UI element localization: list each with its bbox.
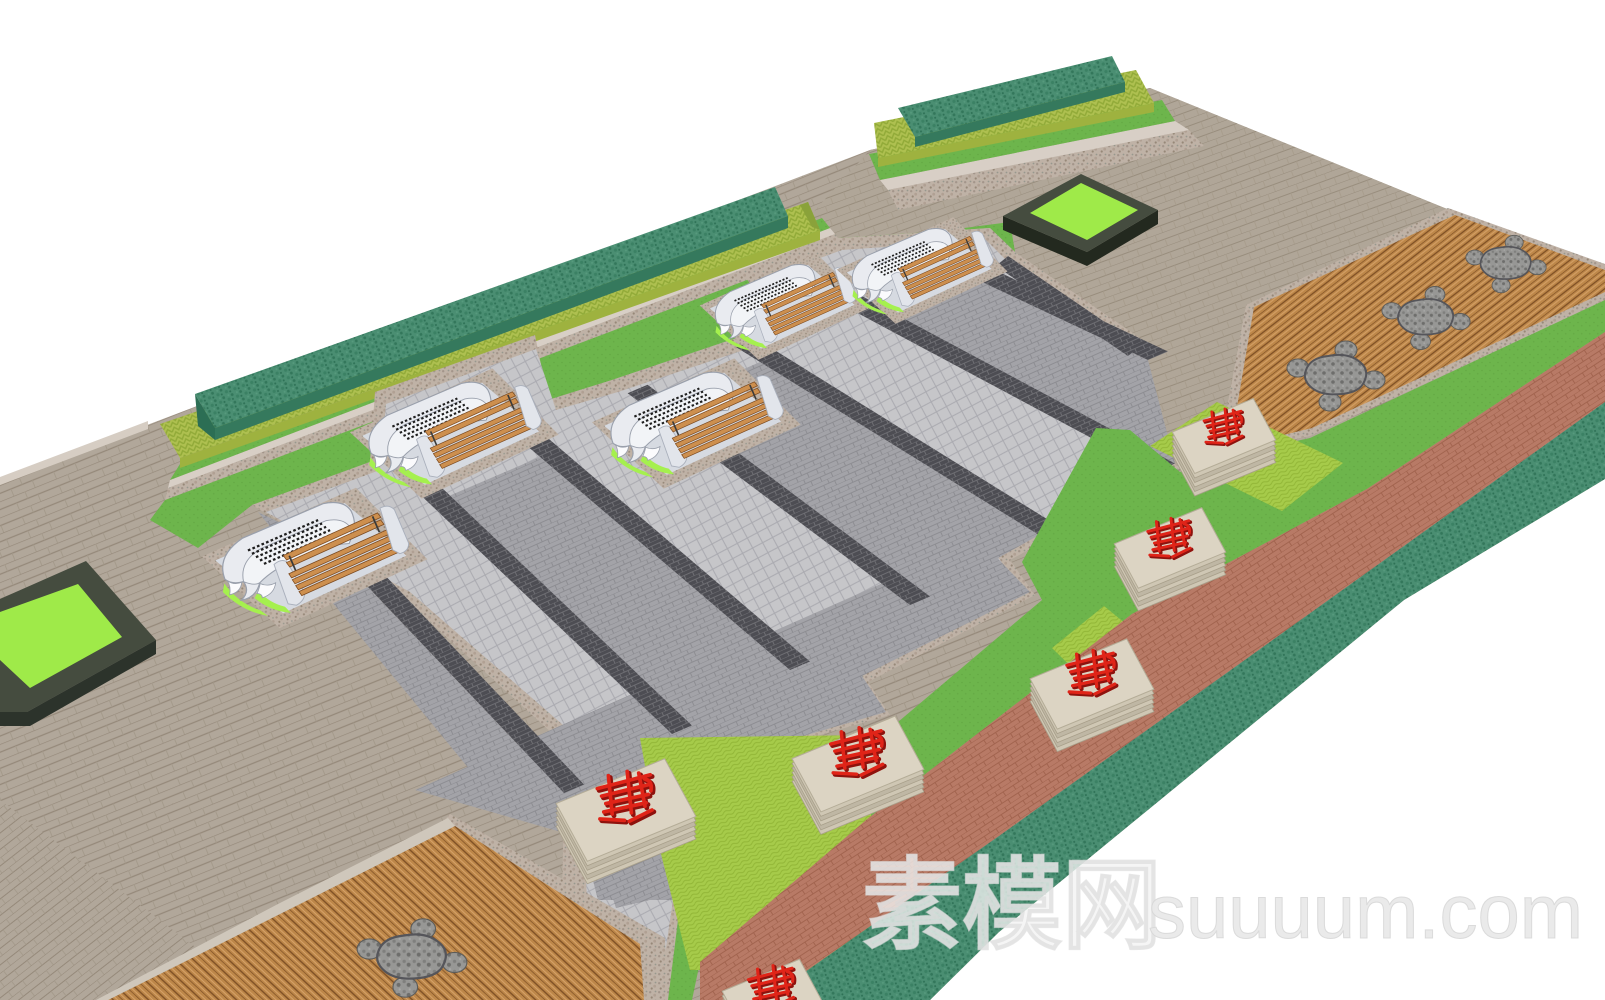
- svg-text:suuuum.com: suuuum.com: [1148, 870, 1583, 955]
- svg-text:素模网: 素模网: [862, 850, 1162, 962]
